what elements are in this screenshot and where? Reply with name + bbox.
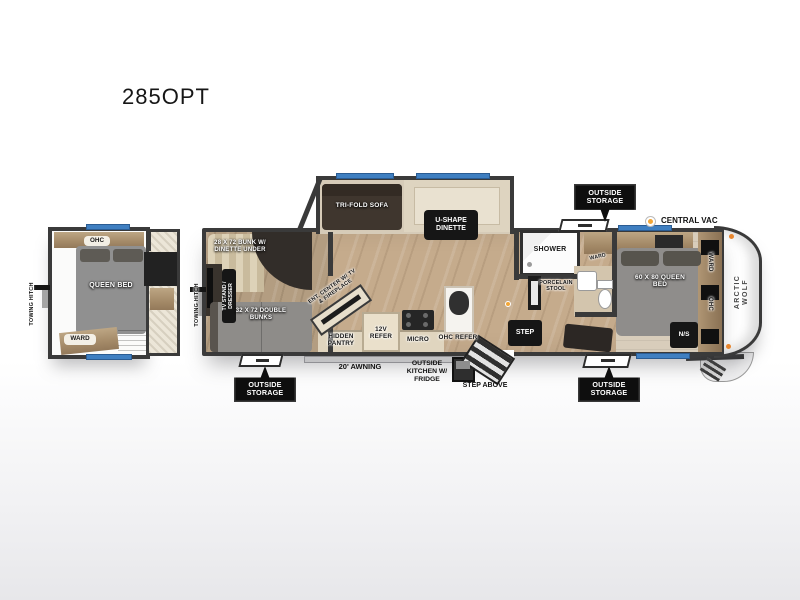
- micro-label: MICRO: [402, 336, 434, 343]
- inset-window-bottom: [86, 354, 132, 360]
- bedroom-window-bottom: [636, 353, 690, 359]
- cooktop-burner-1: [406, 313, 411, 318]
- inset-window-top: [86, 224, 130, 230]
- double-bunks-edge: [210, 302, 218, 352]
- inset-pillow-left: [80, 249, 110, 262]
- cooktop-burner-2: [423, 313, 428, 318]
- central-vac-outlet: [505, 301, 511, 307]
- storage-door-bl-handle: [256, 359, 269, 362]
- floorplan-page: 285OPT OHC QUEEN BED WARD TOWING HITCH A…: [0, 0, 800, 600]
- porcelain-stool-label: PORCELAIN STOOL: [538, 280, 574, 292]
- inset-queen-bed-label: QUEEN BED: [86, 282, 136, 290]
- tri-fold-sofa-label: TRI-FOLD SOFA: [326, 202, 398, 209]
- inset-stairs: [118, 330, 146, 352]
- inset-interior-wall-top: [146, 231, 151, 251]
- step-above-label: STEP ABOVE: [456, 382, 514, 389]
- bedroom-bench: [563, 324, 613, 353]
- hidden-pantry-label: HIDDEN PANTRY: [319, 333, 363, 347]
- night-stand: N/S: [670, 322, 698, 348]
- shower-label: SHOWER: [524, 246, 576, 254]
- clearance-light-top: [729, 234, 734, 239]
- cooktop-burner-4: [423, 322, 428, 327]
- bunk-dinette-label: 28 X 72 BUNK W/ DINETTE UNDER: [212, 240, 268, 253]
- brand-graphic: ARCTIC WOLF: [735, 262, 749, 322]
- outside-kitchen-label: OUTSIDE KITCHEN W/ FRIDGE: [404, 360, 450, 383]
- shower-head: [527, 262, 532, 267]
- toilet-bowl: [598, 289, 612, 309]
- outside-storage-badge-left: OUTSIDE STORAGE: [234, 366, 296, 402]
- inset-ohc-label: OHC: [84, 236, 110, 246]
- inset-towing-hitch-label: TOWING HITCH: [24, 282, 40, 326]
- queen-bed-pillow-left: [621, 251, 659, 266]
- central-vac-marker: [646, 217, 655, 226]
- outside-storage-badge-top: OUTSIDE STORAGE: [574, 184, 636, 222]
- storage-door-br-handle: [601, 359, 615, 362]
- inset-pillow-right: [113, 249, 143, 262]
- bath-wall-bottom: [514, 274, 584, 279]
- outside-storage-badge-right: OUTSIDE STORAGE: [578, 366, 640, 402]
- cooktop-burner-3: [406, 322, 411, 327]
- bedroom-ohc-label: OHC: [704, 286, 716, 322]
- dinette-table-label: U-SHAPE DINETTE: [424, 210, 478, 240]
- inset-hitch-arm: [42, 290, 48, 308]
- slideout-window-right: [416, 173, 490, 179]
- queen-bed-pillow-right: [663, 251, 701, 266]
- storage-door-top-handle: [578, 224, 592, 227]
- queen-bed-label: 60 X 80 QUEEN BED: [634, 274, 686, 289]
- toilet-tank: [597, 280, 613, 289]
- inset-tv-cabinet: [144, 252, 177, 286]
- bath-wall-left: [514, 232, 519, 280]
- bath-ward-cabinet: [584, 232, 612, 254]
- tri-fold-sofa-backrest: [322, 184, 402, 196]
- vanity-mirror-glass: [531, 281, 538, 305]
- page-title: 285OPT: [122, 86, 210, 108]
- step-box: STEP: [508, 320, 542, 346]
- bath-wall-sink: [575, 312, 617, 317]
- clearance-light-bottom: [726, 344, 731, 349]
- double-bunks-label: 32 X 72 DOUBLE BUNKS: [234, 308, 288, 321]
- ohc-refer-label: OHC REFER: [438, 334, 478, 341]
- bath-sink: [577, 271, 597, 291]
- bunk-room-wall-top: [328, 232, 333, 276]
- bedroom-window-top: [618, 225, 672, 231]
- bedroom-ward-label: WARD: [704, 242, 716, 282]
- slideout-window-left: [336, 173, 394, 179]
- main-towing-hitch-label: TOWING HITCH: [189, 283, 205, 327]
- bedroom-top-cabinet-dark: [655, 235, 683, 248]
- inset-shelf-under-tv: [150, 288, 174, 310]
- island-sink: [449, 291, 469, 315]
- inset-wardrobe-label: WARD: [64, 334, 96, 345]
- awning-bar: [304, 356, 476, 363]
- central-vac-label: CENTRAL VAC: [661, 217, 731, 225]
- refer-12v-label: 12V REFER: [364, 326, 398, 340]
- band-cabinet-3: [701, 329, 719, 344]
- outside-kitchen-fridge-top: [456, 361, 470, 369]
- awning-label: 20' AWNING: [320, 363, 400, 371]
- bath-wall-right: [612, 232, 617, 316]
